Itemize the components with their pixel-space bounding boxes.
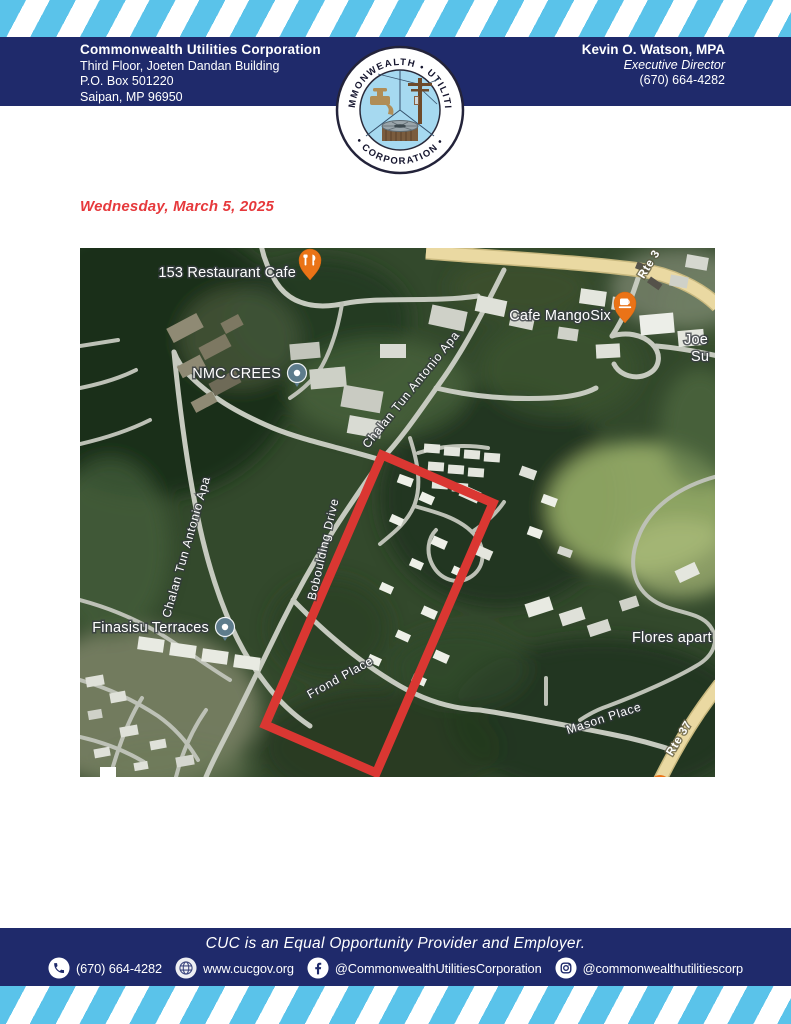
eeo-statement: CUC is an Equal Opportunity Provider and… [0, 928, 791, 953]
google-logo-fragment [100, 767, 116, 777]
footer-facebook-contact: @CommonwealthUtilitiesCorporation [307, 957, 542, 979]
footer-phone-contact: (670) 664-4282 [48, 957, 162, 979]
cuc-seal-logo-icon: COMMONWEALTH • UTILITIES • CORPORATION • [334, 44, 466, 176]
poi-label-nmc-crees: NMC CREES [192, 366, 281, 382]
contact-title: Executive Director [582, 58, 725, 74]
map-canvas: Chalan Tun Antonio Apa Chalan Tun Antoni… [80, 248, 715, 777]
address-line-3: Saipan, MP 96950 [80, 90, 321, 106]
top-stripe-band [0, 0, 791, 37]
footer-phone-label: (670) 664-4282 [76, 961, 162, 976]
header-address-block: Commonwealth Utilities Corporation Third… [80, 42, 321, 105]
facebook-icon [307, 957, 329, 979]
bottom-stripe-band [0, 986, 791, 1024]
footer-facebook-label: @CommonwealthUtilitiesCorporation [335, 961, 542, 976]
poi-label-153-restaurant-cafe: 153 Restaurant Cafe [158, 265, 296, 281]
contact-phone: (670) 664-4282 [582, 73, 725, 89]
footer-contacts-row: (670) 664-4282 www.cucgov.org [0, 957, 791, 979]
contact-name: Kevin O. Watson, MPA [582, 42, 725, 58]
satellite-map-image: Chalan Tun Antonio Apa Chalan Tun Antoni… [80, 248, 715, 777]
org-name: Commonwealth Utilities Corporation [80, 42, 321, 58]
footer-website-label: www.cucgov.org [203, 961, 294, 976]
footer-instagram-label: @commonwealthutilitiescorp [583, 961, 743, 976]
poi-label-cafe-mangosix: Cafe MangoSix [509, 308, 611, 324]
footer-bar: CUC is an Equal Opportunity Provider and… [0, 928, 791, 986]
address-line-2: P.O. Box 501220 [80, 74, 321, 90]
poi-label-flores-apartments: Flores apart [632, 630, 712, 646]
header-contact-block: Kevin O. Watson, MPA Executive Director … [582, 42, 725, 89]
instagram-icon [555, 957, 577, 979]
address-line-1: Third Floor, Joeten Dandan Building [80, 59, 321, 75]
poi-label-joeten-line2: Su [691, 349, 709, 365]
globe-icon [175, 957, 197, 979]
document-date: Wednesday, March 5, 2025 [80, 198, 274, 215]
footer-website-contact: www.cucgov.org [175, 957, 294, 979]
poi-label-finasisu-terraces: Finasisu Terraces [92, 620, 209, 636]
phone-icon [48, 957, 70, 979]
footer-instagram-contact: @commonwealthutilitiescorp [555, 957, 743, 979]
poi-label-joeten-line1: Joe [684, 332, 708, 348]
letterhead-page: Commonwealth Utilities Corporation Third… [0, 0, 791, 1024]
